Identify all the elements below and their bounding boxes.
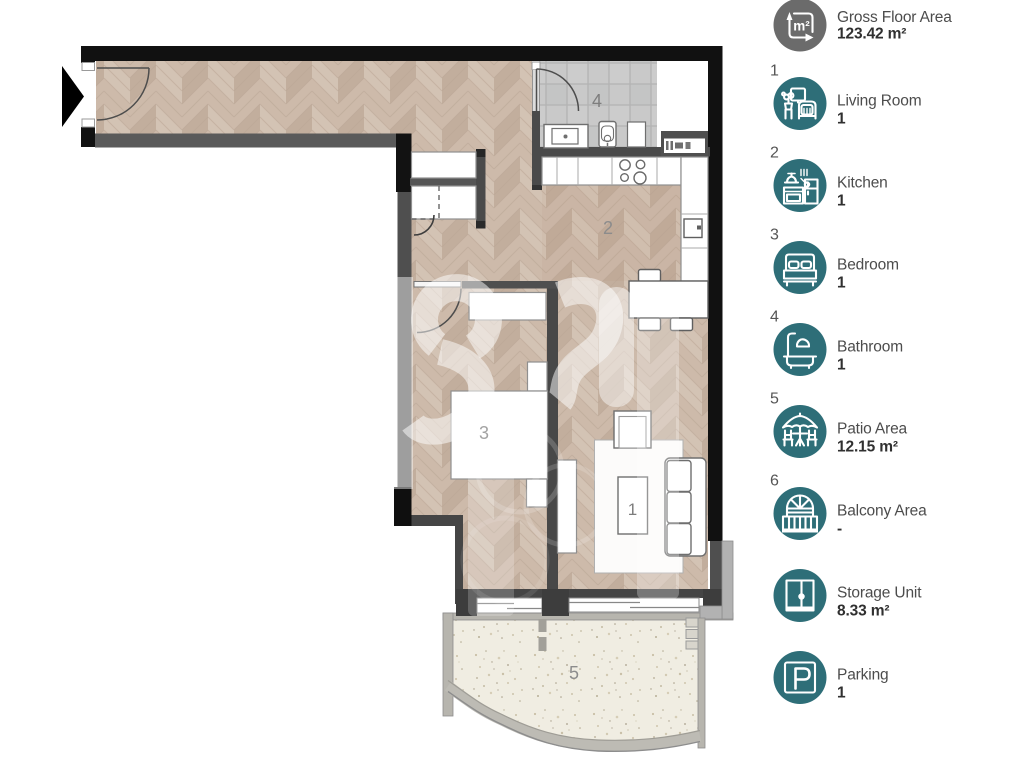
svg-text:1: 1 [837, 275, 846, 292]
svg-text:Kitchen: Kitchen [837, 175, 888, 192]
svg-text:6: 6 [770, 473, 779, 490]
svg-text:1: 1 [628, 500, 637, 519]
svg-text:1: 1 [837, 111, 846, 128]
svg-text:12.15 m²: 12.15 m² [837, 439, 898, 456]
svg-text:2: 2 [603, 218, 613, 238]
svg-text:2: 2 [770, 145, 779, 162]
svg-text:1: 1 [770, 63, 779, 80]
svg-text:123.42 m²: 123.42 m² [837, 26, 906, 43]
svg-text:Patio Area: Patio Area [837, 421, 908, 438]
svg-text:Living Room: Living Room [837, 93, 922, 110]
svg-text:m²: m² [793, 19, 810, 34]
svg-text:1: 1 [837, 685, 846, 702]
svg-text:Storage Unit: Storage Unit [837, 585, 922, 602]
svg-text:Balcony Area: Balcony Area [837, 503, 927, 520]
svg-text:Gross Floor Area: Gross Floor Area [837, 9, 952, 26]
svg-text:4: 4 [770, 309, 779, 326]
svg-text:Parking: Parking [837, 667, 889, 684]
svg-text:4: 4 [592, 91, 602, 111]
svg-text:1: 1 [837, 357, 846, 374]
svg-text:5: 5 [569, 663, 579, 683]
svg-text:5: 5 [770, 391, 779, 408]
svg-text:8.33 m²: 8.33 m² [837, 603, 889, 620]
svg-text:-: - [837, 521, 842, 538]
svg-text:Bedroom: Bedroom [837, 257, 899, 274]
svg-text:Bathroom: Bathroom [837, 339, 903, 356]
svg-text:1: 1 [837, 193, 846, 210]
svg-text:3: 3 [770, 227, 779, 244]
